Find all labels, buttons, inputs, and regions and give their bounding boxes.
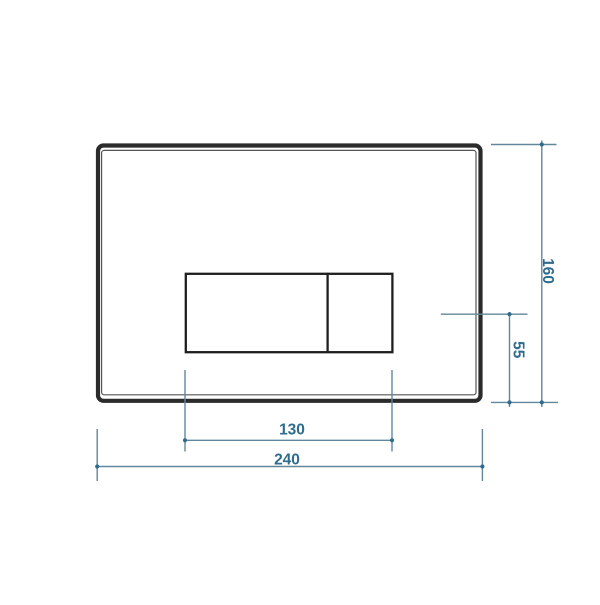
svg-text:160: 160: [539, 258, 556, 284]
svg-text:55: 55: [510, 341, 527, 359]
svg-text:130: 130: [279, 421, 305, 438]
svg-text:240: 240: [274, 451, 300, 468]
